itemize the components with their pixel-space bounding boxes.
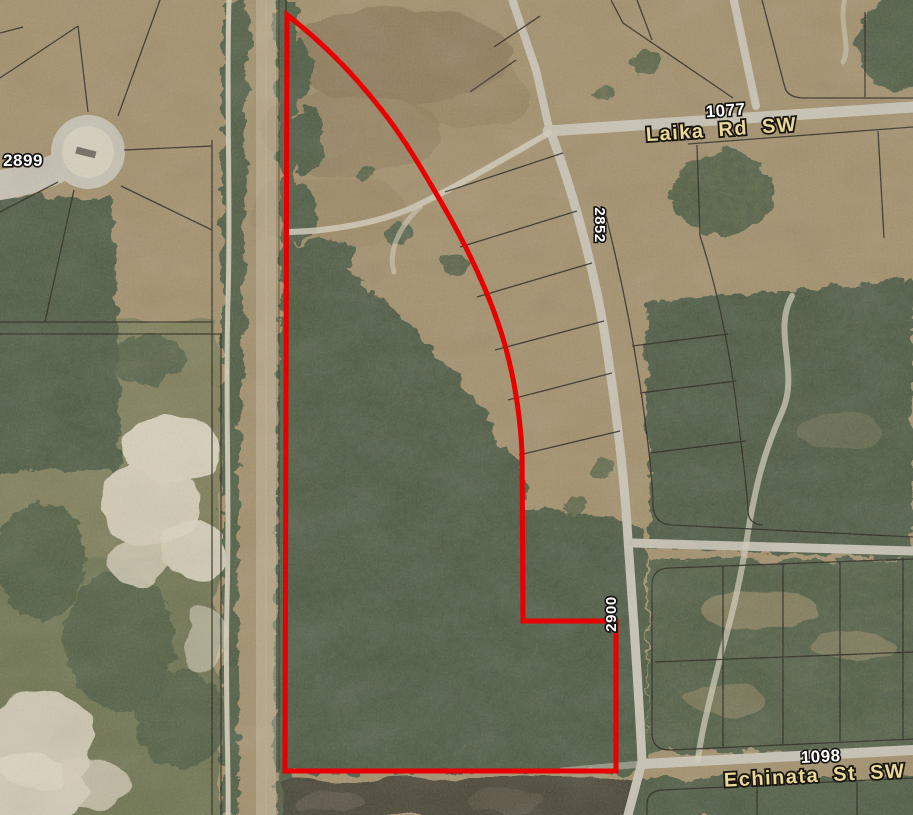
label-road-2852: 2852 — [591, 207, 608, 242]
aerial-map-canvas[interactable]: 2899 1077 Laika Rd SW 2852 2900 1098 Ech… — [0, 0, 913, 815]
label-road-2900-group: 2900 — [603, 596, 620, 631]
label-parcel-2899: 2899 — [3, 151, 43, 170]
label-road-2852-group: 2852 — [591, 207, 608, 242]
map-viewport: 2899 1077 Laika Rd SW 2852 2900 1098 Ech… — [0, 0, 913, 815]
label-road-2900: 2900 — [603, 596, 620, 631]
